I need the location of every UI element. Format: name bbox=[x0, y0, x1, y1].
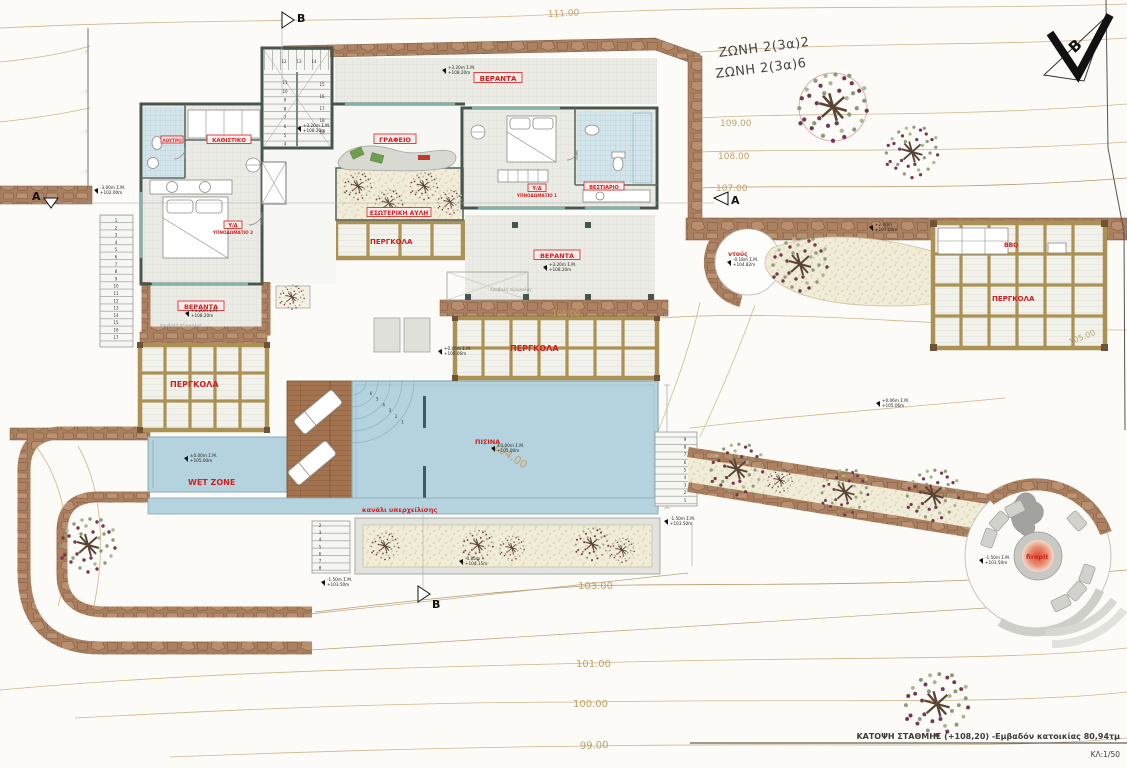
step-number: 18 bbox=[319, 118, 325, 123]
step-number: 4 bbox=[319, 537, 322, 542]
svg-text:ΚΑΤΟΨΗ ΣΤΑΘΜΗΣ (+108,20) -Εμβα: ΚΑΤΟΨΗ ΣΤΑΘΜΗΣ (+108,20) -Εμβαδόν κατοικ… bbox=[856, 731, 1120, 741]
svg-text:+108.20m: +108.20m bbox=[549, 267, 571, 272]
step-number: 16 bbox=[113, 328, 119, 333]
svg-text:ΚΑΘΙΣΤΙΚΟ: ΚΑΘΙΣΤΙΚΟ bbox=[212, 138, 246, 144]
step-number: 1 bbox=[115, 218, 118, 223]
planting-bed-south: 2345678 bbox=[312, 518, 692, 574]
svg-text:ΠΕΡΓΚΟΛΑ: ΠΕΡΓΚΟΛΑ bbox=[992, 295, 1035, 303]
step-number: 7 bbox=[284, 115, 287, 120]
svg-text:ΠΕΡΓΚΟΛΑ: ΠΕΡΓΚΟΛΑ bbox=[510, 344, 559, 353]
svg-text:107.00: 107.00 bbox=[716, 184, 748, 194]
svg-text:+107.00m: +107.00m bbox=[875, 227, 897, 232]
step-number: 15 bbox=[113, 320, 119, 325]
zone-labels: ΖΩΝΗ 2(3α)2 ΖΩΝΗ 2(3α)6 bbox=[715, 35, 811, 82]
step-number: 6 bbox=[370, 391, 373, 396]
step-number: 8 bbox=[684, 445, 687, 450]
svg-text:B: B bbox=[297, 12, 305, 25]
svg-text:B: B bbox=[432, 598, 440, 611]
step-number: 7 bbox=[319, 559, 322, 564]
svg-text:+104.82m: +104.82m bbox=[733, 262, 755, 267]
svg-text:ΛΟΥΤΡΟ: ΛΟΥΤΡΟ bbox=[162, 138, 182, 143]
svg-text:προβολή πέργκολας: προβολή πέργκολας bbox=[160, 323, 203, 328]
svg-text:109.00: 109.00 bbox=[720, 119, 752, 129]
bed-2 bbox=[163, 197, 228, 258]
step-number: 3 bbox=[115, 233, 118, 238]
site-plan-canvas: 1234567891011121314151617 654321 9876543… bbox=[0, 0, 1127, 768]
svg-text:κανάλι υπερχείλισης: κανάλι υπερχείλισης bbox=[362, 506, 437, 514]
svg-text:ΓΡΑΦΕΙΟ: ΓΡΑΦΕΙΟ bbox=[379, 136, 411, 144]
step-number: 17 bbox=[319, 106, 325, 111]
step-number: 4 bbox=[684, 475, 687, 480]
svg-text:BBQ: BBQ bbox=[1004, 242, 1018, 249]
step-number: 12 bbox=[281, 59, 287, 64]
site-plan-svg: 1234567891011121314151617 654321 9876543… bbox=[0, 0, 1127, 768]
step-number: 9 bbox=[115, 276, 118, 281]
step-number: 7 bbox=[684, 452, 687, 457]
svg-text:+103.50m: +103.50m bbox=[327, 582, 349, 587]
svg-text:ΒΕΣΤΙΑΡΙΟ: ΒΕΣΤΙΑΡΙΟ bbox=[589, 185, 619, 191]
label-sitting: ΚΑΘΙΣΤΙΚΟ bbox=[207, 135, 251, 144]
step-number: 4 bbox=[284, 142, 287, 147]
step-number: 19 bbox=[319, 130, 325, 135]
svg-text:+105.00m: +105.00m bbox=[497, 448, 519, 453]
wardrobe-row-1 bbox=[498, 170, 548, 182]
svg-text:προβολή πέργκολας: προβολή πέργκολας bbox=[490, 287, 533, 292]
step-number: 3 bbox=[684, 483, 687, 488]
svg-text:101.00: 101.00 bbox=[576, 659, 611, 670]
label-bath: ΛΟΥΤΡΟ bbox=[161, 136, 183, 143]
svg-text:ΥΠΝΟΔΩΜΑΤΙΟ 1: ΥΠΝΟΔΩΜΑΤΙΟ 1 bbox=[516, 193, 557, 198]
step-number: 16 bbox=[319, 94, 325, 99]
step-number: 2 bbox=[684, 490, 687, 495]
step-number: 3 bbox=[389, 408, 392, 413]
svg-text:+105.06m: +105.06m bbox=[882, 403, 904, 408]
step-number: 11 bbox=[113, 291, 119, 296]
svg-text:103.00: 103.00 bbox=[578, 581, 613, 592]
svg-text:A: A bbox=[731, 194, 740, 207]
step-number: 5 bbox=[376, 397, 379, 402]
label-veranda-right: ΒΕΡΑΝΤΑ bbox=[534, 250, 580, 260]
svg-text:100.00: 100.00 bbox=[573, 699, 608, 710]
svg-text:ΥΠΝΟΔΩΜΑΤΙΟ 2: ΥΠΝΟΔΩΜΑΤΙΟ 2 bbox=[212, 230, 253, 235]
svg-text:+102.00m: +102.00m bbox=[100, 190, 122, 195]
svg-text:WET ZONE: WET ZONE bbox=[188, 478, 235, 487]
label-veranda-top: ΒΕΡΑΝΤΑ bbox=[474, 73, 522, 84]
step-number: 9 bbox=[284, 98, 287, 103]
step-number: 12 bbox=[113, 298, 119, 303]
svg-text:ΒΕΡΑΝΤΑ: ΒΕΡΑΝΤΑ bbox=[480, 75, 517, 83]
step-number: 11 bbox=[282, 80, 288, 85]
svg-text:ΠΕΡΓΚΟΛΑ: ΠΕΡΓΚΟΛΑ bbox=[370, 238, 413, 246]
label-closet: ΒΕΣΤΙΑΡΙΟ bbox=[584, 182, 624, 191]
step-number: 6 bbox=[319, 551, 322, 556]
step-number: 17 bbox=[113, 335, 119, 340]
step-number: 10 bbox=[113, 284, 119, 289]
step-number: 3 bbox=[319, 530, 322, 535]
step-number: 13 bbox=[113, 306, 119, 311]
svg-text:+108.20m: +108.20m bbox=[191, 313, 213, 318]
step-number: 6 bbox=[284, 124, 287, 129]
svg-text:+103.50m: +103.50m bbox=[670, 521, 692, 526]
north-arrow-icon: B bbox=[1044, 15, 1110, 81]
step-number: 5 bbox=[319, 544, 322, 549]
step-number: 10 bbox=[282, 89, 288, 94]
step-number: 5 bbox=[115, 247, 118, 252]
step-number: 14 bbox=[113, 313, 119, 318]
step-number: 1 bbox=[684, 498, 687, 503]
step-number: 7 bbox=[115, 262, 118, 267]
svg-text:Υ/Δ: Υ/Δ bbox=[227, 223, 237, 229]
label-courtyard: ΕΣΩΤΕΡΙΚΗ ΑΥΛΗ bbox=[367, 208, 431, 218]
pergola-bbq bbox=[930, 220, 1108, 351]
step-number: 15 bbox=[319, 82, 325, 87]
step-number: 6 bbox=[684, 460, 687, 465]
step-number: 8 bbox=[319, 566, 322, 571]
step-number: 6 bbox=[115, 255, 118, 260]
svg-text:99.00: 99.00 bbox=[580, 740, 609, 752]
svg-text:A: A bbox=[32, 190, 41, 203]
step-number: 8 bbox=[284, 106, 287, 111]
step-number: 2 bbox=[319, 523, 322, 528]
svg-text:108.00: 108.00 bbox=[718, 152, 750, 162]
svg-text:+103.50m: +103.50m bbox=[985, 560, 1007, 565]
svg-text:+105.00m: +105.00m bbox=[190, 458, 212, 463]
svg-text:ΠΕΡΓΚΟΛΑ: ΠΕΡΓΚΟΛΑ bbox=[170, 380, 219, 389]
step-number: 1 bbox=[401, 420, 404, 425]
svg-text:+108.20m: +108.20m bbox=[448, 70, 470, 75]
step-number: 4 bbox=[115, 240, 118, 245]
step-number: 2 bbox=[115, 225, 118, 230]
shaft bbox=[262, 162, 286, 204]
step-number: 9 bbox=[684, 437, 687, 442]
svg-text:+104.15m: +104.15m bbox=[465, 561, 487, 566]
closet-row-2 bbox=[188, 110, 260, 138]
bed-1 bbox=[507, 116, 556, 162]
step-number: 5 bbox=[284, 133, 287, 138]
svg-text:firepit: firepit bbox=[1026, 553, 1048, 561]
svg-text:ΕΣΩΤΕΡΙΚΗ ΑΥΛΗ: ΕΣΩΤΕΡΙΚΗ ΑΥΛΗ bbox=[370, 210, 429, 217]
step-number: 5 bbox=[684, 467, 687, 472]
step-number: 2 bbox=[395, 414, 398, 419]
svg-text:Υ/Δ: Υ/Δ bbox=[531, 186, 541, 192]
step-number: 13 bbox=[296, 59, 302, 64]
west-exterior-steps: 1234567891011121314151617 bbox=[100, 215, 133, 347]
step-number: 14 bbox=[311, 59, 317, 64]
svg-text:ΒΕΡΑΝΤΑ: ΒΕΡΑΝΤΑ bbox=[540, 252, 574, 260]
svg-text:+105.06m: +105.06m bbox=[444, 351, 466, 356]
svg-text:ΚΛ:1/50: ΚΛ:1/50 bbox=[1091, 750, 1121, 759]
label-office: ΓΡΑΦΕΙΟ bbox=[374, 134, 416, 144]
svg-text:105.00: 105.00 bbox=[552, 309, 580, 318]
step-number: 8 bbox=[115, 269, 118, 274]
svg-text:111.00: 111.00 bbox=[548, 8, 580, 20]
